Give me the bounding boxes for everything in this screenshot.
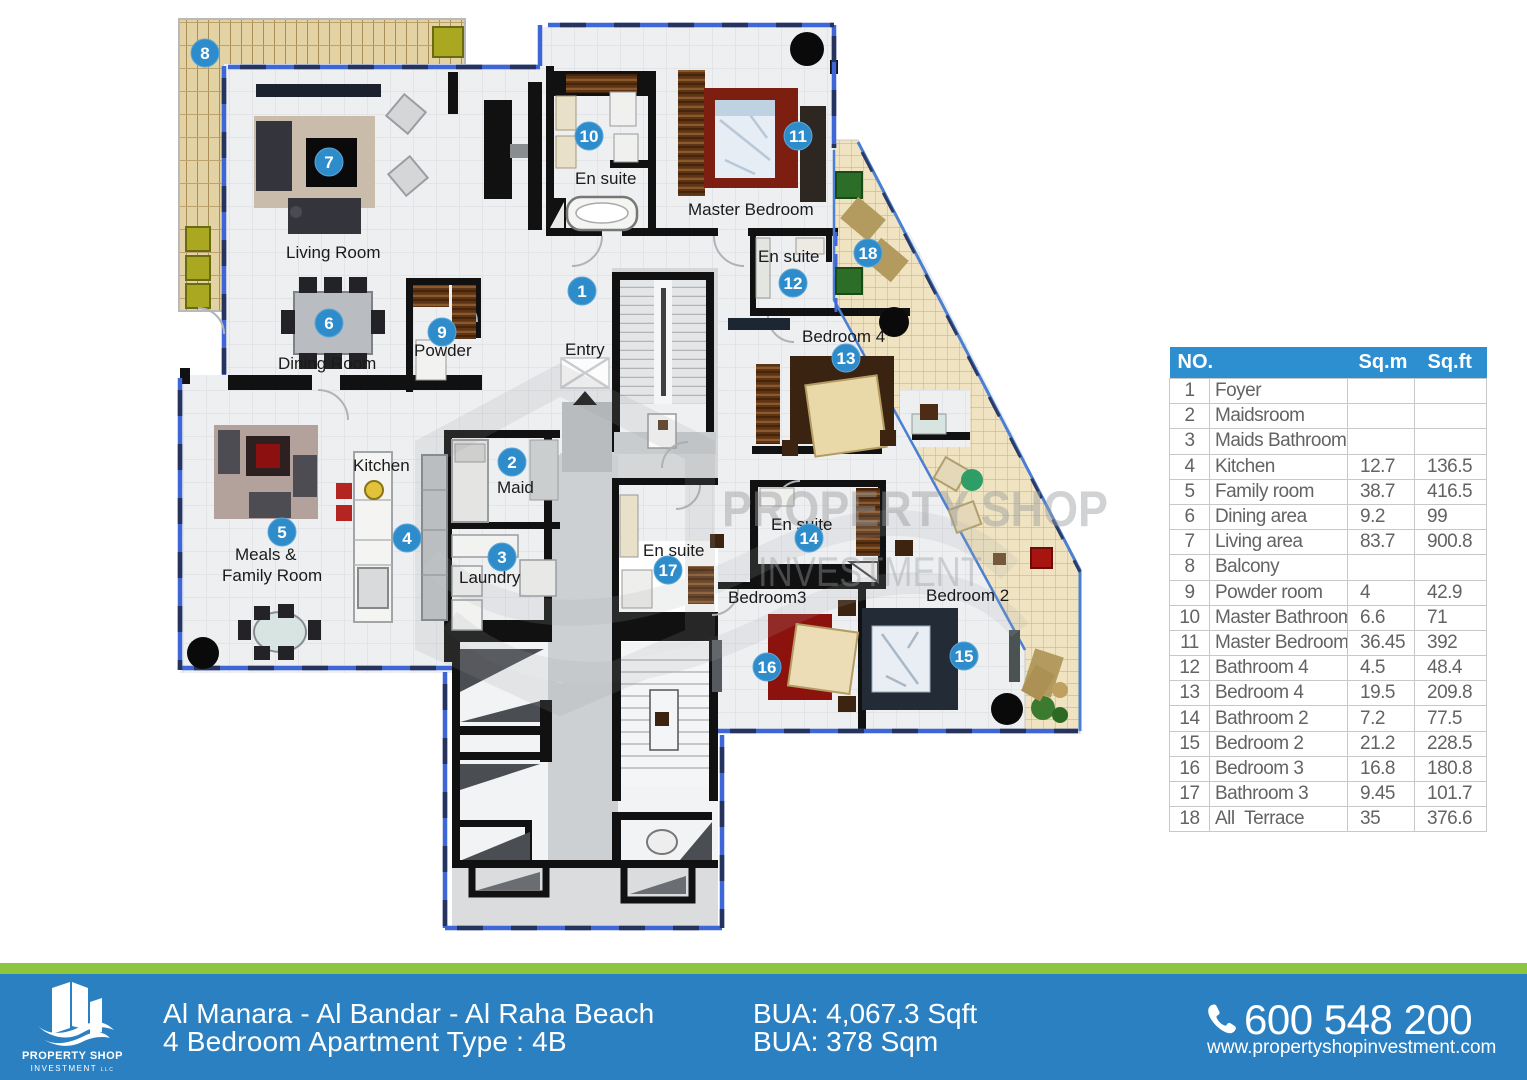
svg-text:Living Room: Living Room [286, 243, 381, 262]
svg-text:Bedroom 4: Bedroom 4 [802, 327, 885, 346]
svg-text:6: 6 [324, 314, 333, 333]
svg-text:Bedroom3: Bedroom3 [728, 588, 806, 607]
svg-text:11: 11 [789, 127, 807, 146]
svg-text:15: 15 [955, 647, 974, 666]
svg-text:3: 3 [497, 548, 506, 567]
svg-text:Entry: Entry [565, 340, 605, 359]
svg-text:Dining Room: Dining Room [278, 354, 376, 373]
svg-text:7: 7 [324, 153, 333, 172]
svg-text:Kitchen: Kitchen [353, 456, 410, 475]
svg-text:14: 14 [800, 529, 819, 548]
svg-text:16: 16 [758, 658, 777, 677]
svg-text:Master Bedroom: Master Bedroom [688, 200, 814, 219]
svg-text:12: 12 [784, 274, 803, 293]
svg-text:Family Room: Family Room [222, 566, 322, 585]
svg-text:Laundry: Laundry [459, 568, 521, 587]
svg-text:18: 18 [859, 244, 878, 263]
svg-text:9: 9 [437, 323, 446, 342]
svg-text:8: 8 [200, 44, 209, 63]
svg-text:1: 1 [577, 282, 586, 301]
svg-text:5: 5 [277, 523, 286, 542]
svg-text:En suite: En suite [575, 169, 636, 188]
svg-text:Bedroom 2: Bedroom 2 [926, 586, 1009, 605]
svg-text:4: 4 [402, 529, 412, 548]
svg-text:2: 2 [507, 453, 516, 472]
svg-text:En suite: En suite [758, 247, 819, 266]
svg-text:13: 13 [837, 349, 856, 368]
svg-text:10: 10 [580, 127, 599, 146]
svg-text:Meals &: Meals & [235, 545, 297, 564]
svg-text:17: 17 [659, 561, 678, 580]
svg-text:Maid: Maid [497, 478, 534, 497]
